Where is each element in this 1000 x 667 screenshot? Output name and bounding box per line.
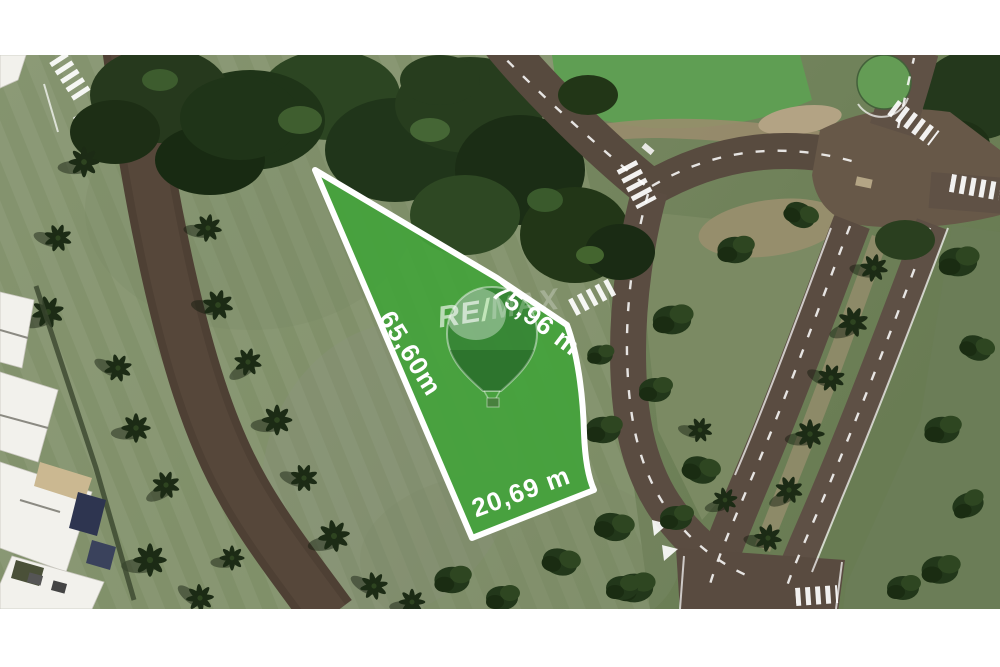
aerial-photo: RE/MAX 65,60m 75,96 m 20,69 m: [0, 0, 1000, 667]
satellite-scene: RE/MAX 65,60m 75,96 m 20,69 m: [0, 30, 1000, 654]
listing-photo-frame: RE/MAX 65,60m 75,96 m 20,69 m: [0, 0, 1000, 667]
balloon-basket: [487, 398, 499, 407]
